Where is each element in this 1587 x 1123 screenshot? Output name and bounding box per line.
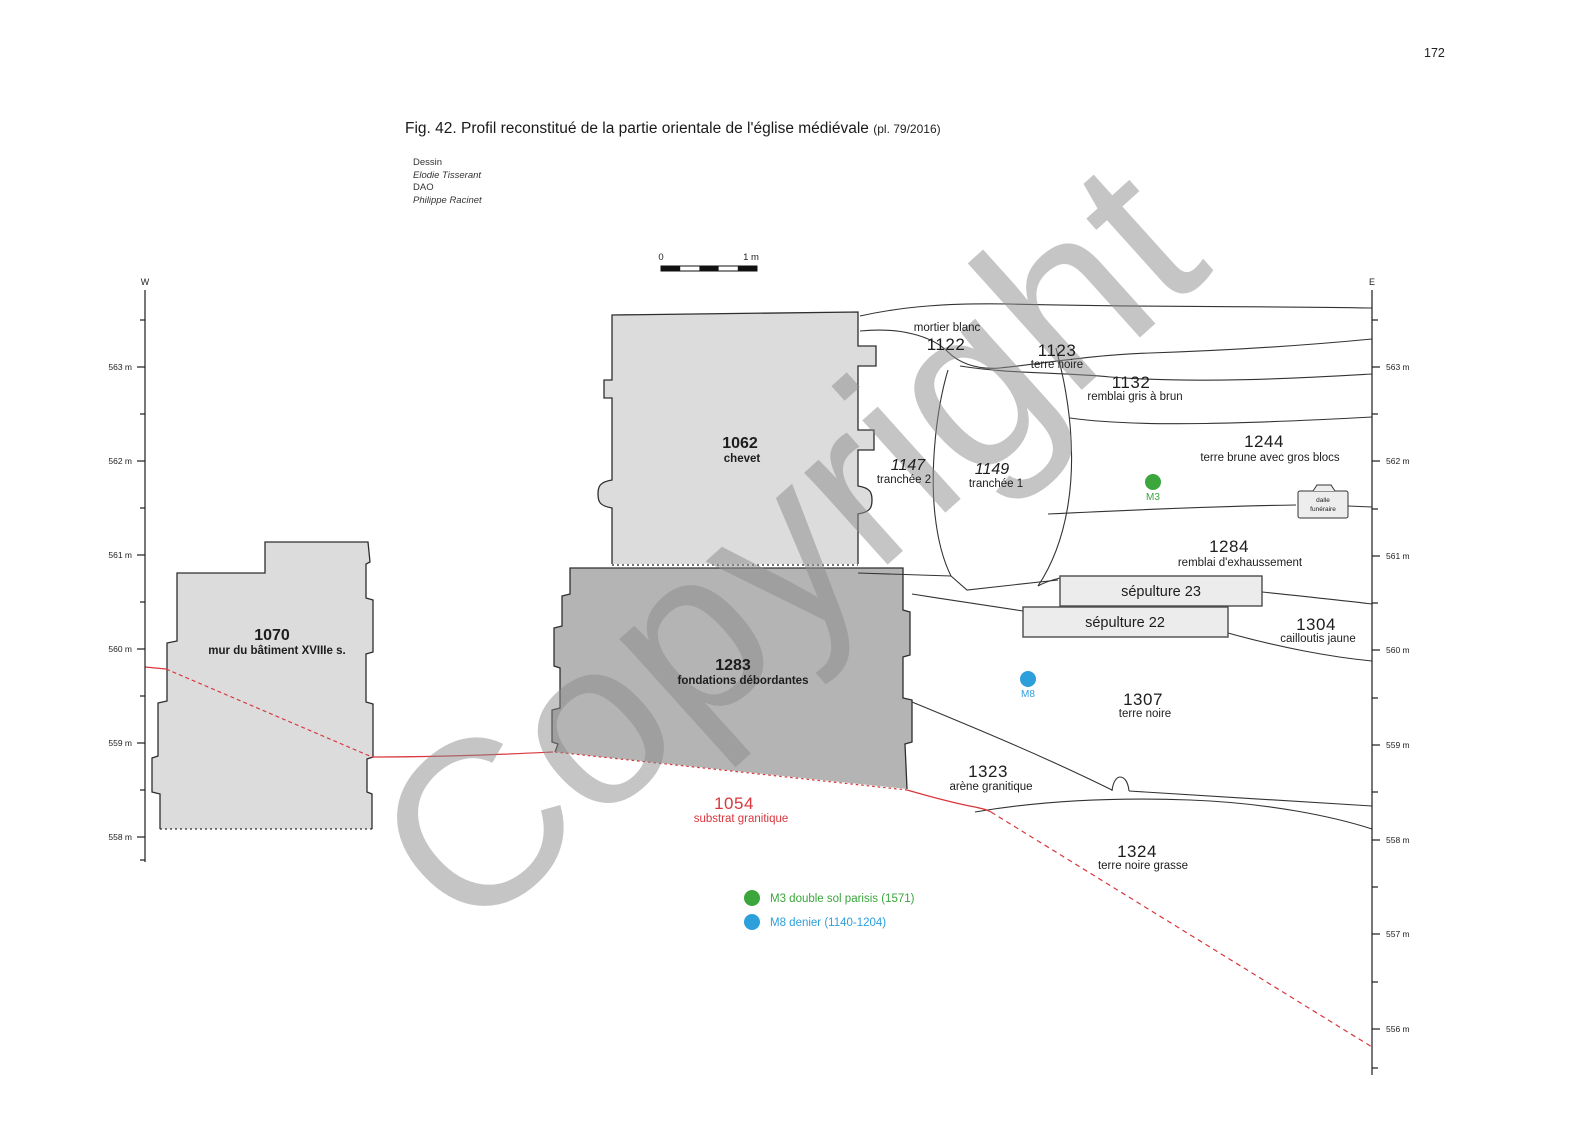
dalle-funeraire-bump bbox=[1313, 485, 1335, 491]
label-1304-num: 1304 bbox=[1296, 615, 1336, 634]
link-to-sepulture22 bbox=[912, 594, 1023, 611]
dalle-funeraire-box bbox=[1298, 491, 1348, 518]
west-axis-minor-ticks bbox=[140, 320, 145, 860]
label-1283-desc: fondations débordantes bbox=[678, 675, 809, 687]
contour-under-1323 bbox=[975, 799, 1372, 829]
label-1149-desc: tranchée 1 bbox=[969, 478, 1023, 490]
west-tick-label: 558 m bbox=[108, 832, 132, 842]
label-1062-desc: chevet bbox=[724, 453, 761, 465]
label-1284-desc: remblai d'exhaussement bbox=[1178, 557, 1303, 569]
east-tick-label: 560 m bbox=[1386, 645, 1410, 655]
scale-bar-one-meter: 1 m bbox=[743, 252, 759, 263]
contour-under-1244-right bbox=[1348, 506, 1372, 507]
contour-stone-bump bbox=[1112, 777, 1129, 791]
contour-under-1307 bbox=[912, 702, 1112, 790]
label-1054-num: 1054 bbox=[714, 794, 754, 813]
west-axis-labels: W 563 m 562 m 561 m 560 m 559 m 558 m bbox=[108, 277, 149, 842]
east-tick-label: 559 m bbox=[1386, 740, 1410, 750]
label-1323-desc: arène granitique bbox=[949, 781, 1032, 793]
east-tick-label: 563 m bbox=[1386, 362, 1410, 372]
contour-under-1244-left bbox=[1048, 505, 1296, 514]
east-axis bbox=[1372, 290, 1380, 1075]
coin-m8-dot bbox=[1020, 671, 1036, 687]
sepulture-23-label: sépulture 23 bbox=[1121, 584, 1201, 600]
red-line-axis-stub bbox=[145, 667, 166, 669]
scale-bar-seg-black2 bbox=[699, 266, 718, 271]
west-axis-direction: W bbox=[141, 277, 150, 287]
west-tick-label: 561 m bbox=[108, 550, 132, 560]
coin-legend: M3 double sol parisis (1571) M8 denier (… bbox=[744, 890, 915, 930]
label-1244-num: 1244 bbox=[1244, 432, 1284, 451]
west-axis bbox=[137, 290, 145, 862]
label-1283-num: 1283 bbox=[715, 657, 751, 674]
label-1054-desc: substrat granitique bbox=[694, 813, 789, 825]
scale-bar-zero: 0 bbox=[658, 252, 663, 263]
profile-drawing: W 563 m 562 m 561 m 560 m 559 m 558 m bbox=[0, 0, 1587, 1123]
west-tick-label: 560 m bbox=[108, 644, 132, 654]
label-1307-num: 1307 bbox=[1123, 690, 1163, 709]
east-axis-direction: E bbox=[1369, 277, 1375, 287]
red-line-dashed-to-east bbox=[991, 812, 1372, 1047]
red-line-solid-drop bbox=[907, 790, 991, 812]
label-1147-desc: tranchée 2 bbox=[877, 474, 931, 486]
contour-under-1307-right bbox=[1129, 791, 1372, 806]
east-tick-label: 561 m bbox=[1386, 551, 1410, 561]
label-1284-num: 1284 bbox=[1209, 537, 1249, 556]
legend-m8-text: M8 denier (1140-1204) bbox=[770, 917, 886, 929]
dalle-funeraire-line2: funéraire bbox=[1310, 506, 1336, 513]
label-1244-desc: terre brune avec gros blocs bbox=[1200, 452, 1340, 464]
label-1147-num: 1147 bbox=[891, 457, 927, 474]
contour-under-1284 bbox=[1262, 592, 1372, 604]
legend-m8-dot bbox=[744, 914, 760, 930]
scale-bar-seg-black1 bbox=[661, 266, 680, 271]
west-tick-label: 559 m bbox=[108, 738, 132, 748]
label-1122-num: 1122 bbox=[927, 335, 966, 354]
label-1132-desc: remblai gris à brun bbox=[1087, 391, 1182, 403]
label-1307-desc: terre noire bbox=[1119, 708, 1171, 720]
label-1070-num: 1070 bbox=[254, 627, 290, 644]
east-tick-label: 556 m bbox=[1386, 1024, 1410, 1034]
label-1062-num: 1062 bbox=[722, 435, 758, 452]
sepulture-22-label: sépulture 22 bbox=[1085, 615, 1165, 631]
label-1149-num: 1149 bbox=[975, 461, 1010, 478]
west-tick-label: 563 m bbox=[108, 362, 132, 372]
coin-m3-dot bbox=[1145, 474, 1161, 490]
dalle-funeraire-line1: dalle bbox=[1316, 497, 1330, 504]
label-1122-desc: mortier blanc bbox=[914, 322, 981, 334]
label-1132-num: 1132 bbox=[1112, 373, 1151, 392]
label-1123-desc: terre noire bbox=[1031, 359, 1083, 371]
east-tick-label: 557 m bbox=[1386, 929, 1410, 939]
east-axis-labels: E 563 m 562 m 561 m 560 m 559 m 558 m 55… bbox=[1369, 277, 1410, 1034]
east-tick-label: 562 m bbox=[1386, 456, 1410, 466]
label-1324-desc: terre noire grasse bbox=[1098, 860, 1188, 872]
east-axis-minor-ticks bbox=[1372, 320, 1378, 1068]
scale-bar: 0 1 m bbox=[658, 252, 759, 271]
label-1323-num: 1323 bbox=[968, 762, 1008, 781]
link-to-sepulture23 bbox=[951, 576, 1058, 590]
label-1304-desc: cailloutis jaune bbox=[1280, 633, 1355, 645]
copyright-watermark: Copyright bbox=[325, 111, 1248, 979]
scale-bar-seg-black3 bbox=[738, 266, 757, 271]
legend-m3-dot bbox=[744, 890, 760, 906]
coin-m3-label: M3 bbox=[1146, 492, 1160, 503]
legend-m3-text: M3 double sol parisis (1571) bbox=[770, 893, 915, 905]
east-tick-label: 558 m bbox=[1386, 835, 1410, 845]
label-1123-num: 1123 bbox=[1038, 341, 1077, 360]
label-1324-num: 1324 bbox=[1117, 842, 1157, 861]
west-tick-label: 562 m bbox=[108, 456, 132, 466]
coin-m8-label: M8 bbox=[1021, 689, 1035, 700]
label-1070-desc: mur du bâtiment XVIIIe s. bbox=[208, 645, 345, 657]
